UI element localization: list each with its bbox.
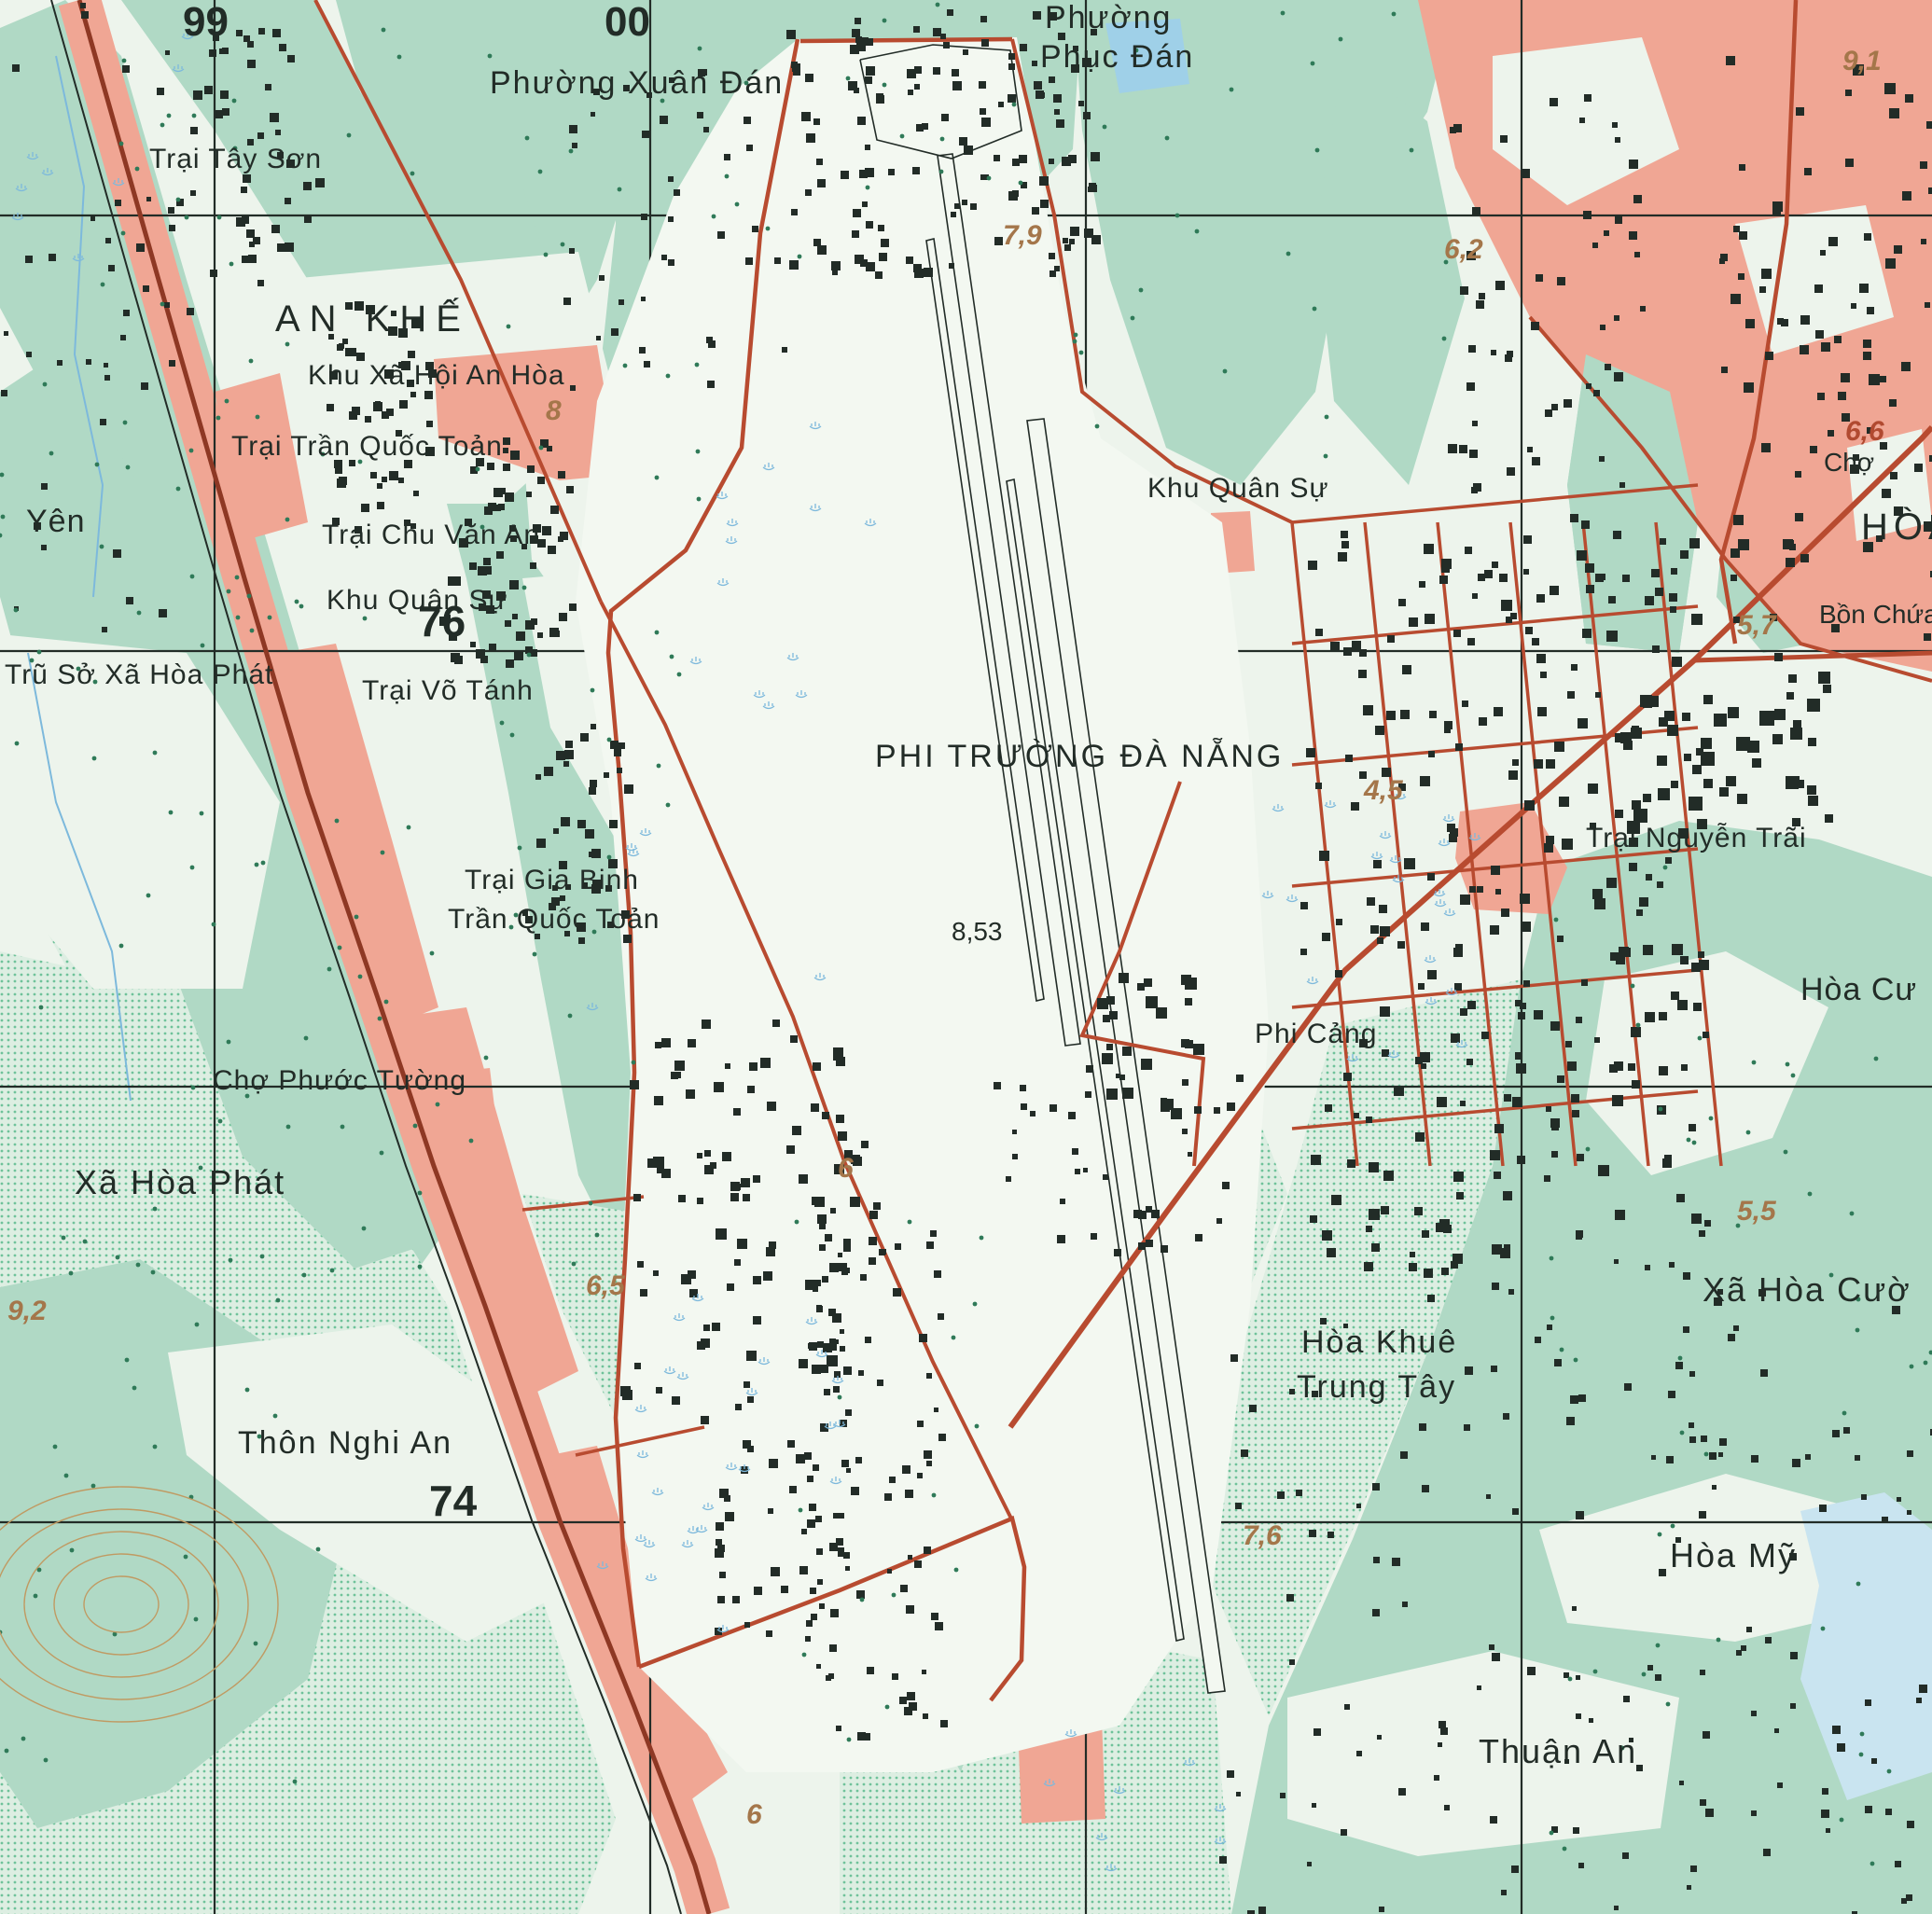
svg-text:6,5: 6,5 — [586, 1270, 626, 1301]
svg-text:Khu Xã Hội An Hòa: Khu Xã Hội An Hòa — [308, 360, 565, 391]
svg-text:Trại Chu Văn An: Trại Chu Văn An — [322, 520, 540, 550]
svg-text:Hòa Khuê: Hòa Khuê — [1301, 1325, 1457, 1360]
svg-text:Chợ: Chợ — [1824, 448, 1874, 477]
svg-text:Trại Gia Binh: Trại Gia Binh — [465, 865, 639, 895]
svg-text:8,53: 8,53 — [952, 917, 1003, 946]
svg-text:8: 8 — [546, 395, 562, 426]
svg-text:Thôn Nghi An: Thôn Nghi An — [238, 1425, 452, 1461]
svg-text:Thuận An: Thuận An — [1479, 1732, 1637, 1770]
svg-text:6: 6 — [746, 1799, 762, 1830]
svg-text:Bồn Chứa: Bồn Chứa — [1819, 600, 1932, 629]
svg-text:Chợ Phước Tường: Chợ Phước Tường — [213, 1065, 466, 1096]
svg-text:74: 74 — [429, 1477, 478, 1525]
svg-text:HÒA: HÒA — [1861, 506, 1932, 548]
svg-text:Hòa Mỹ: Hòa Mỹ — [1670, 1536, 1797, 1574]
svg-text:Phường Xuân Đán: Phường Xuân Đán — [490, 65, 784, 101]
svg-text:76: 76 — [418, 597, 466, 645]
svg-text:Phường: Phường — [1045, 0, 1172, 35]
svg-text:4,5: 4,5 — [1363, 775, 1404, 806]
svg-text:Phục Đán: Phục Đán — [1040, 39, 1194, 75]
svg-text:6: 6 — [838, 1153, 854, 1184]
svg-text:6,2: 6,2 — [1444, 234, 1483, 265]
svg-text:Trần Quốc Toản: Trần Quốc Toản — [448, 904, 660, 935]
svg-text:AN KHẾ: AN KHẾ — [275, 297, 470, 340]
svg-text:Trại Trần Quốc Toản: Trại Trần Quốc Toản — [231, 431, 503, 462]
svg-text:Trại Nguyễn Trãi: Trại Nguyễn Trãi — [1586, 823, 1807, 853]
svg-text:9,1: 9,1 — [1842, 46, 1882, 76]
svg-text:Trại Tây Sơn: Trại Tây Sơn — [149, 144, 322, 174]
svg-text:Trại Võ Tánh: Trại Võ Tánh — [362, 675, 534, 706]
svg-text:Hòa Cư: Hòa Cư — [1800, 972, 1917, 1007]
svg-text:Yên: Yên — [26, 504, 86, 539]
svg-text:PHI TRƯỜNG ĐÀ NẴNG: PHI TRƯỜNG ĐÀ NẴNG — [875, 739, 1284, 774]
svg-text:00: 00 — [605, 0, 650, 45]
svg-text:Trũ Sở Xã Hòa Phát: Trũ Sở Xã Hòa Phát — [5, 659, 273, 690]
svg-text:Trung Tây: Trung Tây — [1297, 1369, 1456, 1405]
svg-text:Xã Hòa Cườ: Xã Hòa Cườ — [1703, 1270, 1911, 1309]
svg-text:7,6: 7,6 — [1243, 1520, 1282, 1551]
svg-text:99: 99 — [183, 0, 229, 45]
svg-text:9,2: 9,2 — [7, 1296, 47, 1326]
svg-text:5,7: 5,7 — [1737, 610, 1777, 641]
svg-text:Khu Quân Sự: Khu Quân Sự — [1147, 473, 1329, 504]
svg-text:6,6: 6,6 — [1845, 416, 1884, 447]
svg-text:Xã Hòa Phát: Xã Hòa Phát — [75, 1163, 285, 1201]
svg-text:7,9: 7,9 — [1003, 220, 1042, 251]
svg-text:Phi Cảng: Phi Cảng — [1255, 1019, 1377, 1049]
svg-text:5,5: 5,5 — [1737, 1196, 1777, 1227]
